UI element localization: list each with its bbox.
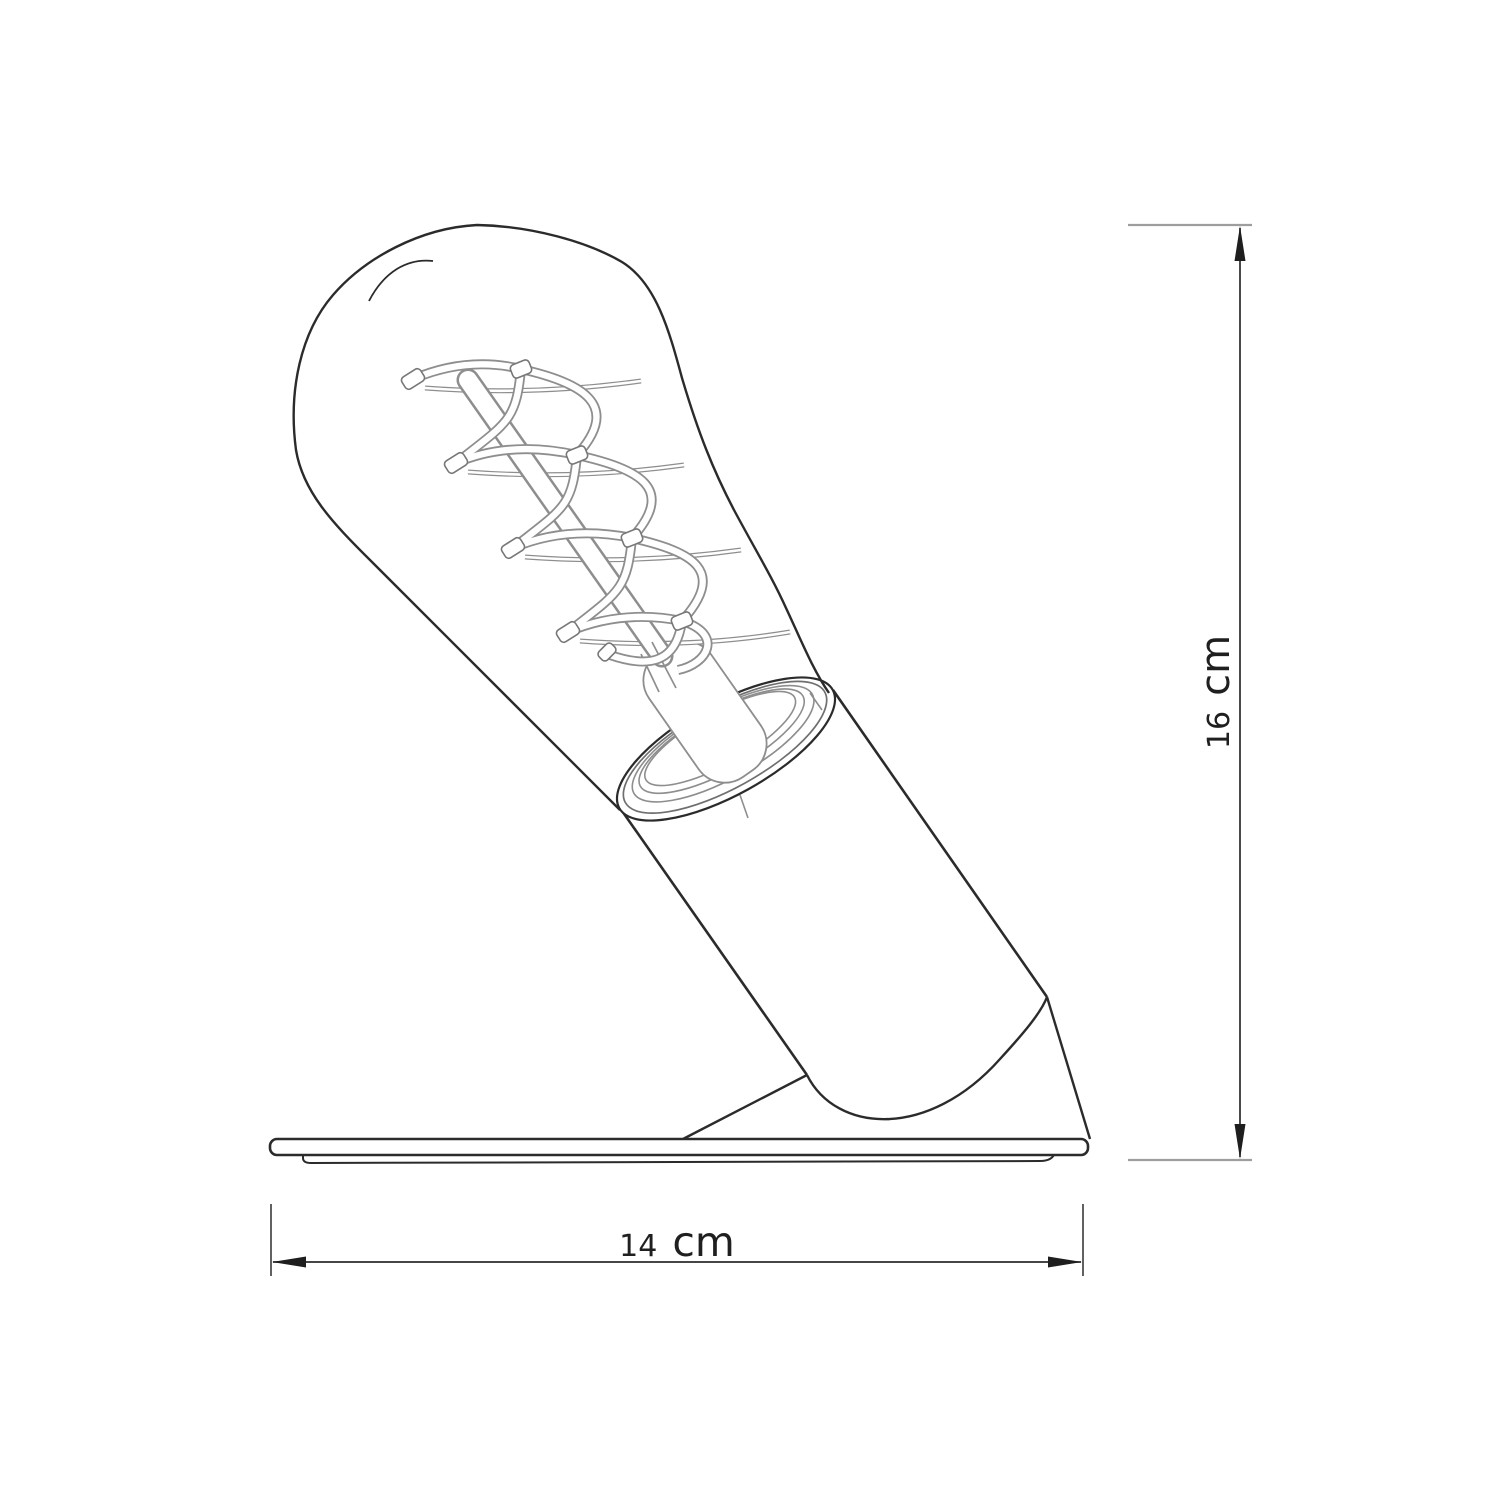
filament-clip (509, 359, 533, 379)
filament-clip (620, 528, 644, 548)
width-dimension-label: 14 cm (619, 1218, 735, 1266)
base (270, 1139, 1088, 1163)
width-dimension: 14 cm (271, 1204, 1083, 1276)
width-unit: cm (672, 1218, 734, 1266)
arrow-down-icon (1235, 1124, 1246, 1159)
glass-reflection (369, 261, 433, 301)
wedge-support-left (683, 1075, 807, 1139)
arrow-up-icon (1235, 226, 1246, 261)
width-value: 14 (619, 1229, 657, 1264)
height-dimension-label: 16 cm (1193, 635, 1239, 749)
wedge-support-right (1047, 997, 1090, 1139)
height-unit: cm (1193, 635, 1239, 696)
height-dimension: 16 cm (1128, 225, 1252, 1160)
arrow-left-icon (272, 1257, 306, 1268)
lamp-technical-drawing: 16 cm 14 cm (0, 0, 1500, 1500)
filament-back-line-core (580, 632, 790, 644)
height-value: 16 (1202, 711, 1237, 749)
filament-clip (565, 445, 589, 465)
arrow-right-icon (1048, 1257, 1082, 1268)
base-top-plate (270, 1139, 1088, 1155)
filament (400, 359, 790, 692)
drawing-svg: 16 cm 14 cm (0, 0, 1500, 1500)
